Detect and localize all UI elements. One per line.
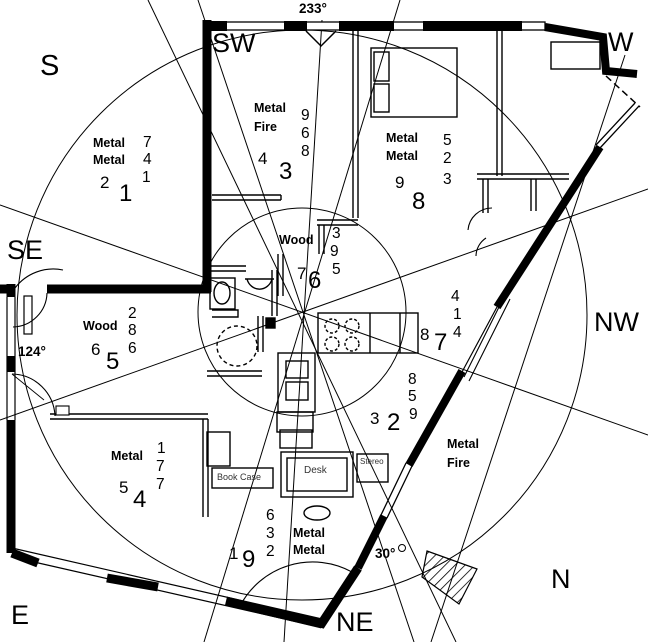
refrigerator (277, 353, 315, 432)
palace-ne-column-2: 3 (266, 526, 275, 542)
kitchen-stove (318, 313, 418, 353)
palace-e-column-1: 1 (157, 441, 166, 457)
palace-ne-star-big: 9 (242, 548, 255, 572)
degree-label-ne-door: 30° (375, 547, 395, 561)
stool (304, 506, 330, 520)
compass-label-sw: SW (212, 30, 256, 57)
degree-label-facing: 233° (299, 2, 327, 16)
palace-e-element-1: Metal (111, 450, 143, 463)
palace-s-element-2: Metal (93, 154, 125, 167)
palace-ne-element-2: Metal (293, 544, 325, 557)
palace-n-element-2: Fire (447, 457, 470, 470)
palace-n-star-small: 3 (370, 410, 379, 427)
palace-ne-element-1: Metal (293, 527, 325, 540)
palace-w-column-3: 3 (443, 172, 452, 188)
palace-center-column-3: 5 (332, 262, 341, 278)
palace-center-element-1: Wood (279, 234, 313, 247)
palace-w-element-2: Metal (386, 150, 418, 163)
compass-label-nw: NW (594, 309, 639, 336)
palace-s-column-2: 4 (143, 152, 152, 168)
palace-se-column-3: 6 (128, 341, 137, 357)
palace-se-column-1: 2 (128, 306, 137, 322)
palace-n-star-big: 2 (387, 411, 400, 435)
tub (217, 326, 257, 366)
palace-s-element-1: Metal (93, 137, 125, 150)
palace-w-element-1: Metal (386, 132, 418, 145)
stairs (422, 551, 477, 604)
compass-label-s: S (40, 52, 59, 81)
sliding-door-leaf (464, 295, 510, 381)
palace-s-star-small: 2 (100, 174, 109, 191)
palace-sw-column-3: 8 (301, 144, 310, 160)
palace-n-column-3: 9 (409, 407, 418, 423)
palace-e-star-big: 4 (133, 488, 146, 512)
compass-label-ne: NE (336, 609, 374, 636)
palace-e-column-2: 7 (156, 459, 165, 475)
palace-n-column-1: 8 (408, 372, 417, 388)
palace-center-column-1: 3 (332, 226, 341, 242)
palace-s-star-big: 1 (119, 182, 132, 206)
palace-w-column-2: 2 (443, 151, 452, 167)
palace-w-star-big: 8 (412, 190, 425, 214)
palace-n-column-2: 5 (408, 389, 417, 405)
compass-label-se: SE (7, 237, 43, 264)
palace-se-star-small: 6 (91, 341, 100, 358)
palace-nw-column-3: 4 (453, 325, 462, 341)
palace-center-column-2: 9 (330, 244, 339, 260)
palace-ne-star-small: 1 (229, 545, 238, 562)
bookcase-label: Book Case (217, 473, 261, 482)
palace-e-column-3: 7 (156, 477, 165, 493)
degree-label-se-door: 124° (18, 345, 46, 359)
palace-center-star-big: 6 (308, 269, 321, 293)
floor-plan-canvas: S SW W SE NW E NE N 233° 124° 30° Metal … (0, 0, 648, 642)
palace-se-star-big: 5 (106, 350, 119, 374)
compass-label-n: N (551, 566, 571, 593)
compass-label-w: W (608, 29, 633, 56)
palace-nw-column-1: 4 (451, 289, 460, 305)
palace-sw-star-small: 4 (258, 150, 267, 167)
desk-label: Desk (304, 466, 327, 476)
palace-sw-element-1: Metal (254, 102, 286, 115)
palace-ne-column-3: 2 (266, 544, 275, 560)
palace-se-element-1: Wood (83, 320, 117, 333)
left-door-leaf (24, 296, 32, 334)
palace-w-star-small: 9 (395, 174, 404, 191)
palace-sw-element-2: Fire (254, 121, 277, 134)
palace-se-column-2: 8 (128, 323, 137, 339)
palace-sw-star-big: 3 (279, 160, 292, 184)
palace-w-column-1: 5 (443, 133, 452, 149)
palace-ne-column-1: 6 (266, 508, 275, 524)
palace-sw-column-1: 9 (301, 108, 310, 124)
stereo-label: Stereo (360, 458, 384, 466)
palace-nw-star-big: 7 (434, 331, 447, 355)
palace-nw-column-2: 1 (453, 307, 462, 323)
compass-label-e: E (11, 602, 29, 629)
shelf (207, 432, 230, 466)
palace-e-star-small: 5 (119, 479, 128, 496)
palace-s-column-3: 1 (142, 170, 151, 186)
bed (371, 48, 457, 117)
palace-sw-column-2: 6 (301, 126, 310, 142)
degree-marker-dot (399, 545, 406, 552)
palace-center-star-small: 7 (297, 265, 306, 282)
palace-s-column-1: 7 (143, 135, 152, 151)
palace-nw-star-small: 8 (420, 326, 429, 343)
palace-n-element-1: Metal (447, 438, 479, 451)
